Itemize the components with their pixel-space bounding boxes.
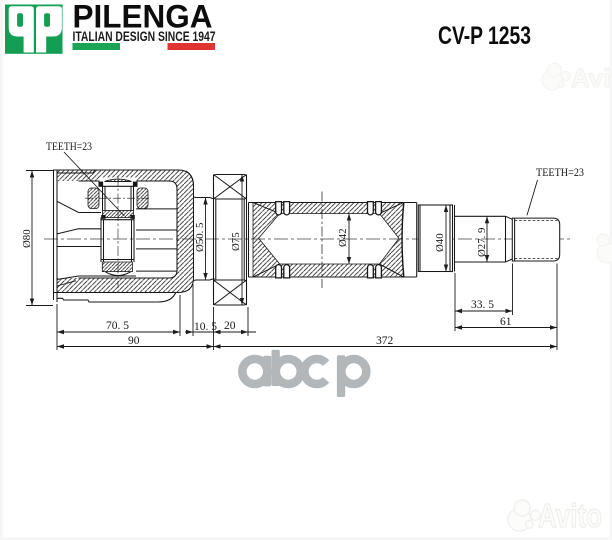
svg-text:10. 5: 10. 5 xyxy=(194,321,217,333)
svg-text:Ø80: Ø80 xyxy=(21,229,33,248)
svg-text:70. 5: 70. 5 xyxy=(106,320,129,332)
svg-text:Ø42: Ø42 xyxy=(337,228,349,247)
svg-text:Avito: Avito xyxy=(538,497,602,534)
svg-text:ITALIAN DESIGN SINCE 1947: ITALIAN DESIGN SINCE 1947 xyxy=(73,29,216,44)
svg-text:Avito: Avito xyxy=(571,63,612,93)
svg-text:CV-P 1253: CV-P 1253 xyxy=(438,22,531,50)
svg-text:33. 5: 33. 5 xyxy=(471,299,494,311)
svg-text:61: 61 xyxy=(500,316,512,328)
svg-text:372: 372 xyxy=(376,335,394,347)
svg-text:TEETH=23: TEETH=23 xyxy=(536,167,584,179)
svg-text:Ø75: Ø75 xyxy=(230,232,242,251)
svg-text:90: 90 xyxy=(128,335,140,347)
svg-text:Ø27. 9: Ø27. 9 xyxy=(476,228,488,257)
svg-text:TEETH=23: TEETH=23 xyxy=(46,141,92,153)
svg-text:Ø50. 5: Ø50. 5 xyxy=(194,223,206,252)
svg-text:Ø40: Ø40 xyxy=(434,233,446,252)
svg-text:20: 20 xyxy=(224,320,236,332)
